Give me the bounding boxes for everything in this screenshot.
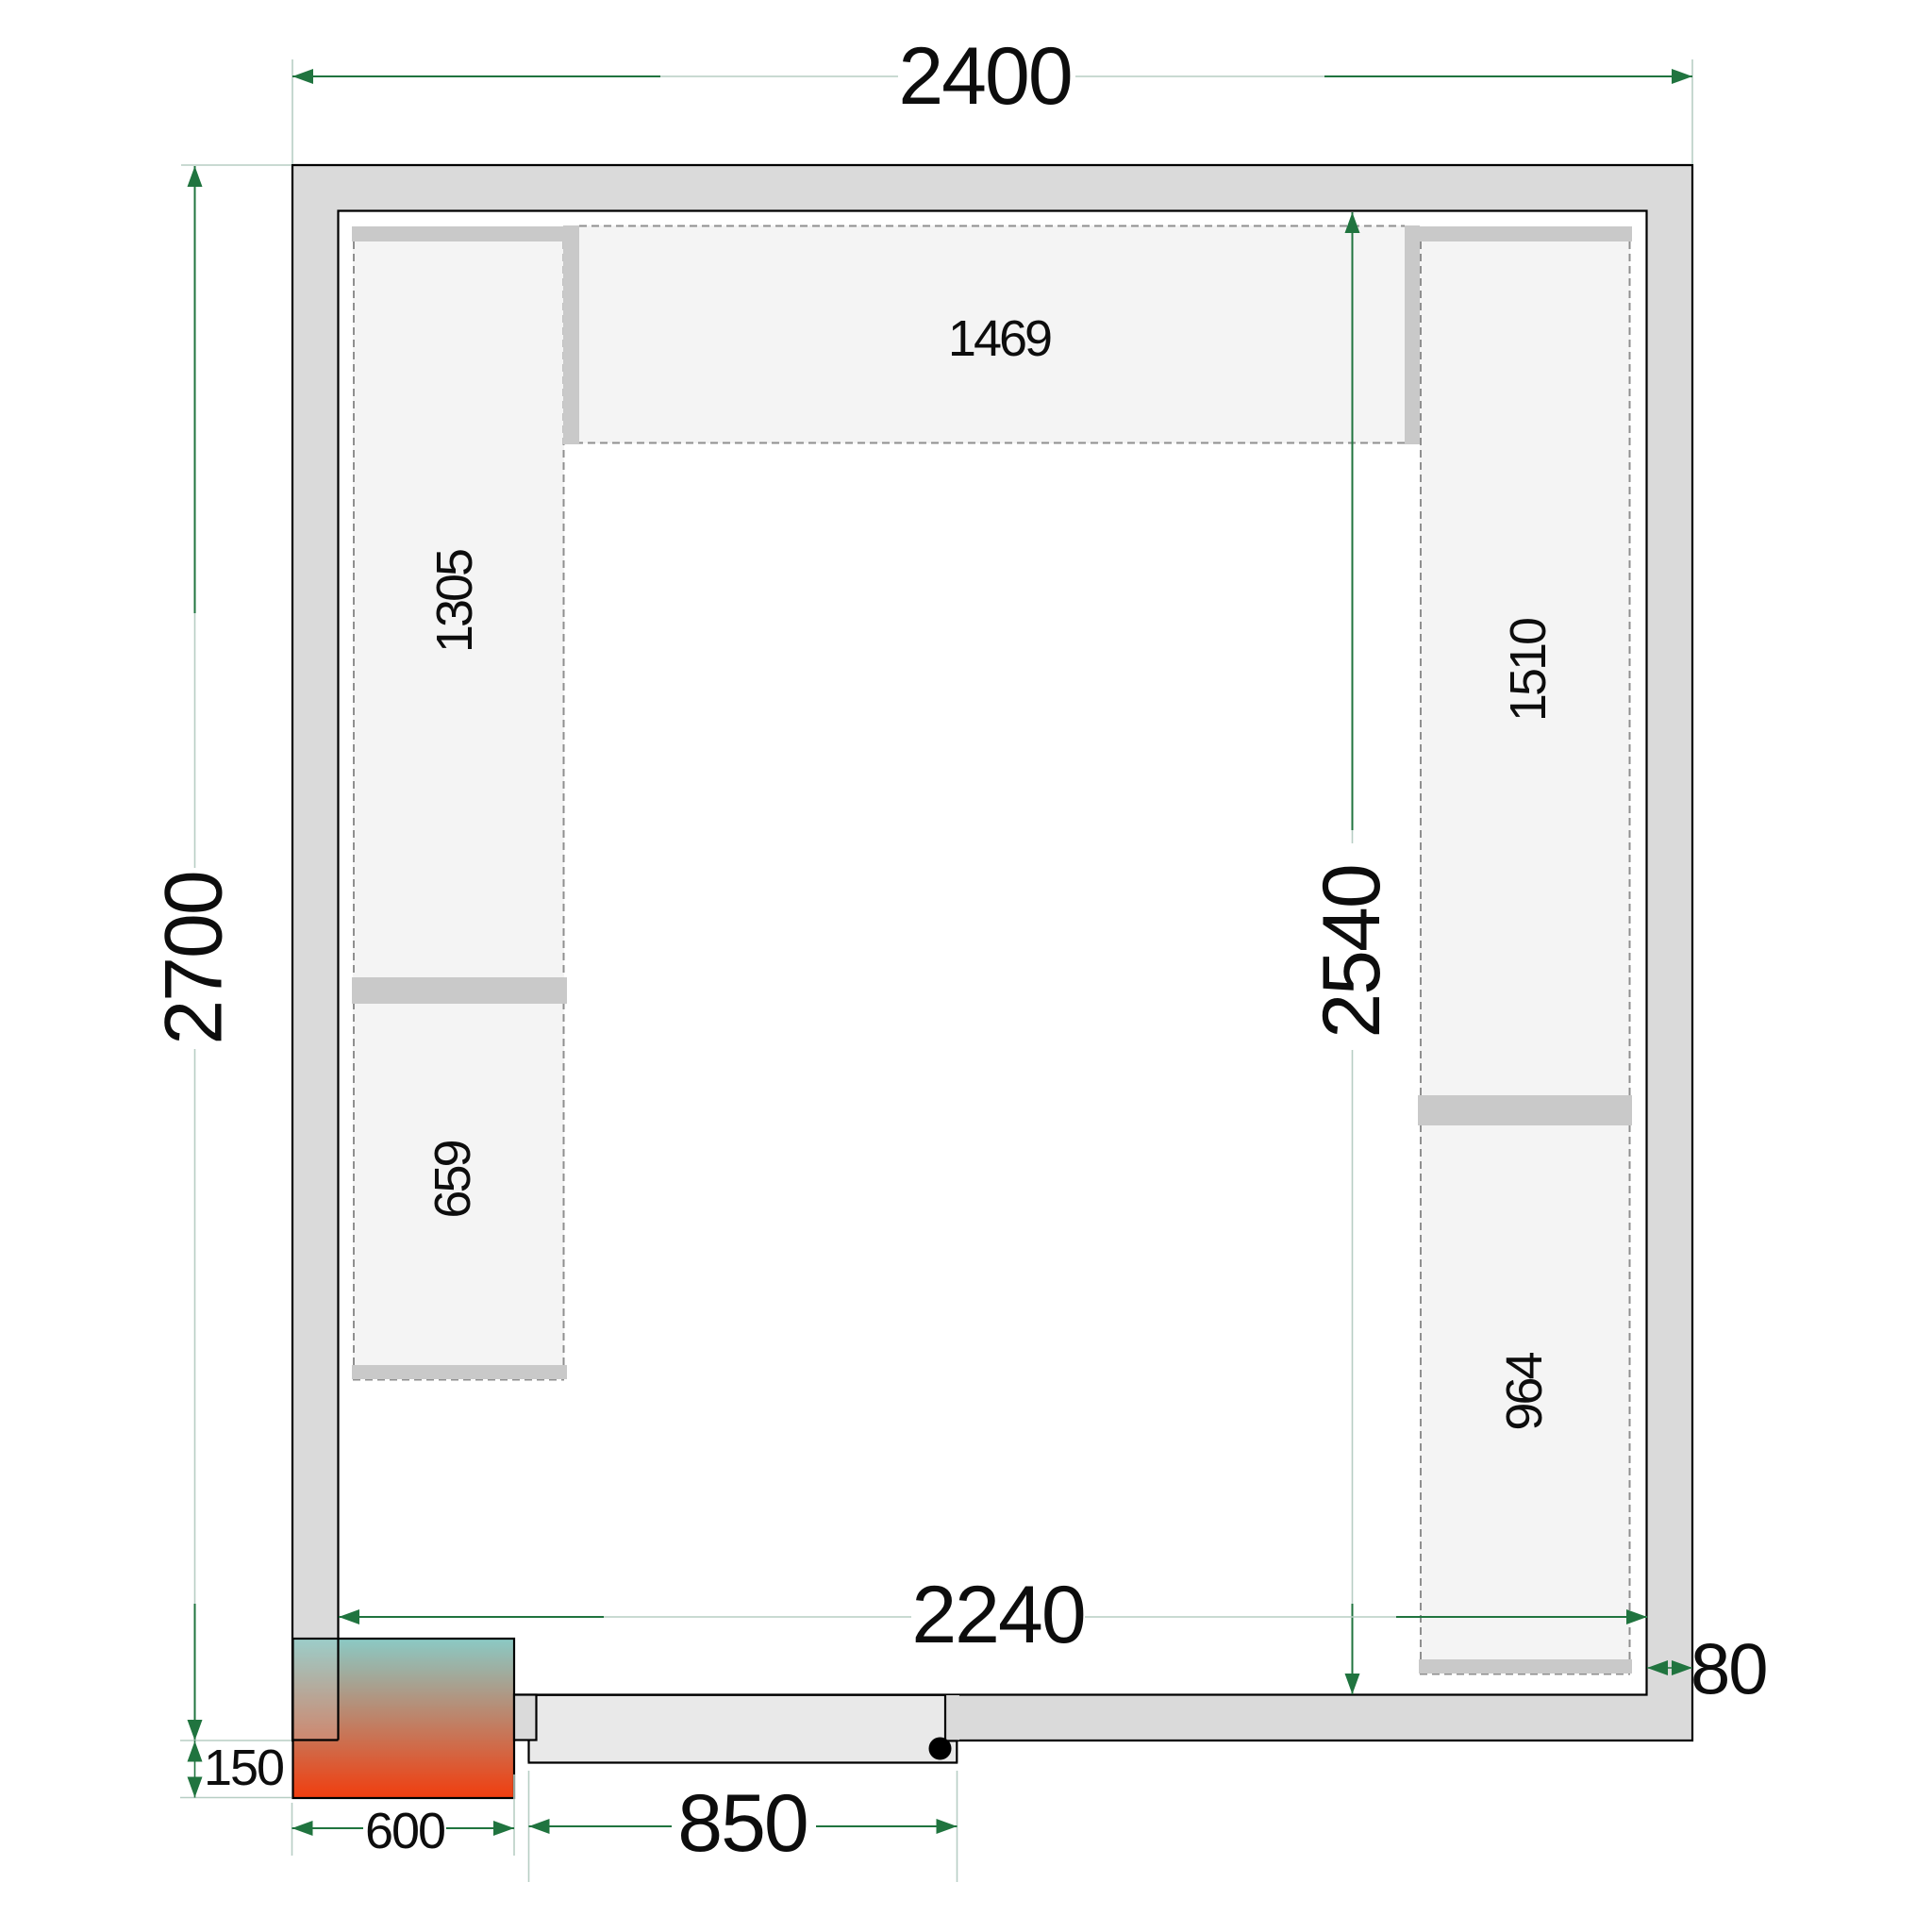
svg-text:150: 150	[204, 1740, 283, 1796]
svg-text:1469: 1469	[948, 310, 1051, 367]
svg-text:2540: 2540	[1307, 865, 1397, 1038]
svg-text:1510: 1510	[1500, 619, 1557, 722]
svg-text:2400: 2400	[898, 31, 1071, 122]
svg-text:80: 80	[1690, 1630, 1767, 1710]
svg-text:964: 964	[1496, 1352, 1553, 1430]
svg-text:2240: 2240	[911, 1570, 1084, 1660]
svg-text:850: 850	[677, 1778, 808, 1869]
svg-text:1305: 1305	[426, 550, 483, 653]
svg-text:2700: 2700	[149, 872, 240, 1044]
svg-text:659: 659	[425, 1141, 481, 1218]
svg-text:600: 600	[365, 1803, 444, 1859]
